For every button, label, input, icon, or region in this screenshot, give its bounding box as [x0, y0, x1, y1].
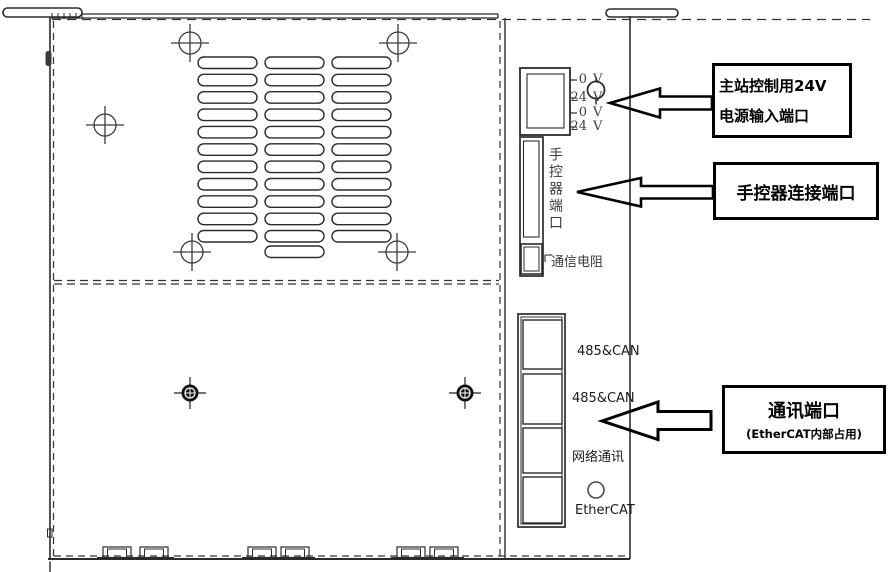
vent-slot: [332, 92, 391, 104]
side-clip: [46, 51, 52, 66]
vent-slot: [198, 231, 257, 243]
vent-slot: [332, 74, 391, 86]
vent-slot: [332, 144, 391, 156]
vent-slot: [332, 57, 391, 69]
resistor-label: 通信电阻: [551, 251, 603, 270]
vent-slot: [265, 231, 324, 243]
vent-slot: [265, 74, 324, 86]
arrow-power-icon: [610, 89, 712, 118]
vent-slot: [198, 74, 257, 86]
vent-slot: [265, 92, 324, 104]
screw-hole-crosshair-icon: [173, 233, 211, 271]
vent-slot: [265, 246, 324, 258]
callout-comm-subtitle: (EtherCAT内部占用): [746, 426, 862, 442]
terminal-unit: V: [593, 90, 602, 105]
bottom-clip-icon: [391, 547, 431, 558]
vent-slot: [198, 109, 257, 121]
callout-hand-controller: 手控器连接端口: [713, 162, 879, 220]
callout-comm-title: 通讯端口: [768, 397, 840, 423]
vent-slot: [198, 57, 257, 69]
callout-power-line1: 主站控制用24V: [719, 71, 849, 101]
callout-hand-label: 手控器连接端口: [737, 179, 856, 204]
screw-markers: [86, 24, 481, 409]
terminal-label-row: 0V: [570, 105, 602, 120]
vent-slot: [198, 213, 257, 225]
arrow-comm-icon: [602, 402, 711, 440]
terminal-unit: V: [593, 119, 602, 134]
screw-hole-crosshair-icon: [378, 233, 416, 271]
port-485can-1: [523, 320, 562, 369]
vent-slot: [332, 179, 391, 191]
vent-slot: [332, 161, 391, 173]
vent-slot: [265, 196, 324, 208]
vent-slot: [198, 144, 257, 156]
screw-hole-crosshair-icon: [171, 24, 209, 62]
arrow-hand-icon: [577, 178, 713, 207]
screw-hole-crosshair-icon: [86, 106, 124, 144]
vent-slot: [332, 109, 391, 121]
mounting-ear-right: [606, 9, 678, 17]
terminal-unit: V: [593, 105, 602, 120]
vent-slot: [332, 196, 391, 208]
vent-slot: [198, 179, 257, 191]
comm-port-label-485can-2: 485&CAN: [572, 391, 635, 406]
vent-slot: [198, 92, 257, 104]
screw-head-icon: [174, 377, 206, 409]
terminal-label-row: 0V: [570, 72, 602, 87]
vent-slot: [265, 161, 324, 173]
port-ethercat: [523, 477, 562, 523]
screw-head-icon: [449, 377, 481, 409]
vent-slot: [332, 231, 391, 243]
vent-slot: [265, 109, 324, 121]
vent-grid: [198, 57, 391, 258]
terminal-label-row: 24V: [570, 90, 602, 105]
vent-slot: [265, 57, 324, 69]
terminal-label-row: 24V: [570, 119, 602, 134]
port-network: [523, 428, 562, 473]
callout-power-line2: 电源输入端口: [719, 101, 849, 131]
vent-slot: [265, 144, 324, 156]
ethercat-led-icon: [588, 482, 604, 498]
terminal-value: 0: [570, 105, 587, 120]
vent-slot: [265, 179, 324, 191]
comm-resistor-box: [521, 244, 552, 274]
comm-port-label-485can-1: 485&CAN: [577, 344, 640, 359]
vent-slot: [198, 161, 257, 173]
callout-power-input: 主站控制用24V 电源输入端口: [712, 63, 852, 138]
vent-slot: [265, 213, 324, 225]
device-port-diagram: 0V 24V 0V 24V 手控器端口 通信电阻 485&CAN 485&CAN…: [0, 0, 893, 572]
terminal-value: 0: [570, 72, 587, 87]
vent-slot: [198, 196, 257, 208]
vent-slot: [332, 126, 391, 137]
terminal-unit: V: [593, 72, 602, 87]
terminal-value: 24: [570, 90, 587, 105]
comm-port-label-network: 网络通讯: [572, 446, 624, 465]
hand-port-label: 手控器端口: [545, 147, 565, 232]
vent-slot: [198, 126, 257, 137]
terminal-value: 24: [570, 119, 587, 134]
vent-slot: [265, 126, 324, 137]
vent-slot: [332, 213, 391, 225]
port-485can-2: [523, 374, 562, 424]
comm-port-label-ethercat: EtherCAT: [575, 503, 635, 518]
hand-controller-port: [520, 137, 543, 276]
callout-comm-port: 通讯端口 (EtherCAT内部占用): [722, 385, 886, 454]
